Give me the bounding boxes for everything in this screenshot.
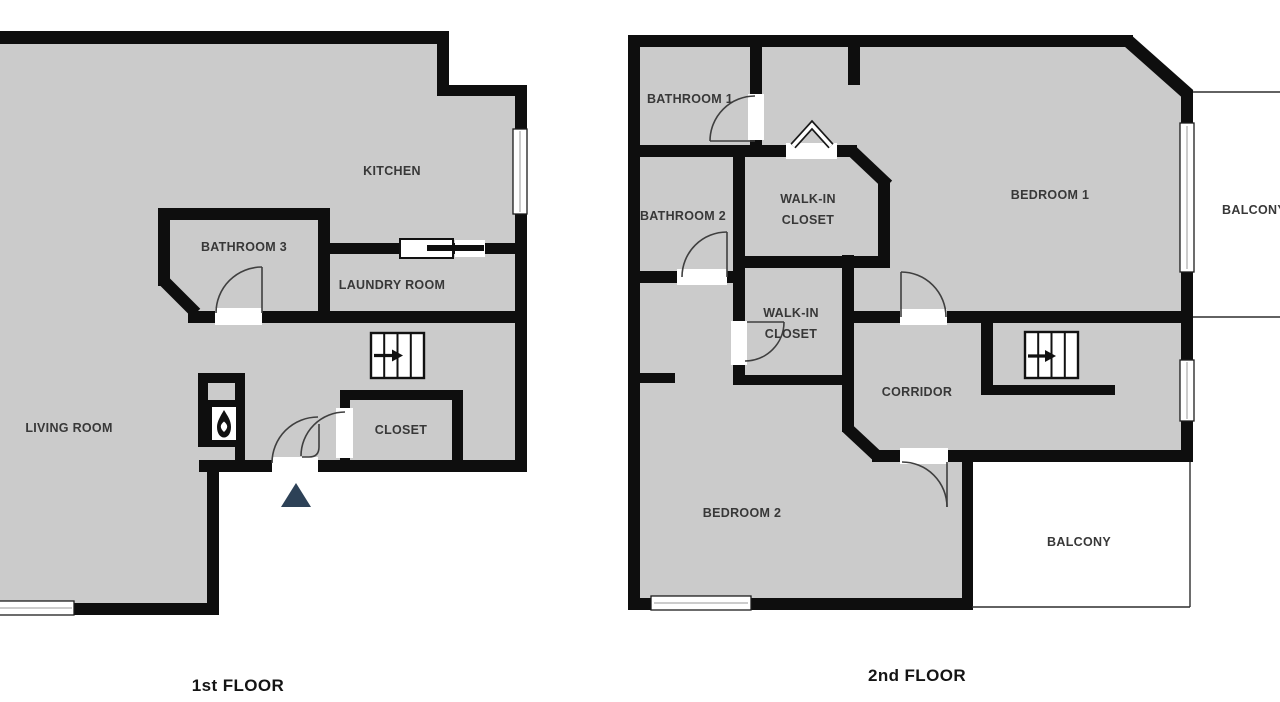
bathroom1-door-opening (748, 94, 764, 140)
front-door-opening (272, 457, 318, 474)
balcony-right-label: BALCONY (1222, 203, 1280, 217)
stairs-icon-first-floor (371, 333, 424, 378)
closet-door-opening (336, 408, 353, 458)
laundry-room-label: LAUNDRY ROOM (339, 278, 445, 292)
bedroom1-window (1180, 123, 1194, 272)
first-floor-title: 1st FLOOR (192, 676, 284, 695)
bathroom3-door-opening (215, 308, 262, 325)
bathroom2-label: BATHROOM 2 (640, 209, 726, 223)
closet-label: CLOSET (375, 423, 428, 437)
bathroom1-label: BATHROOM 1 (647, 92, 733, 106)
entrance-arrow-icon (281, 483, 311, 507)
walkin-closet1-label-line1: WALK-IN (780, 192, 836, 206)
kitchen-appliance-icon (400, 239, 485, 258)
bedroom2-label: BEDROOM 2 (703, 506, 781, 520)
living-room-label: LIVING ROOM (25, 421, 112, 435)
bathroom3-label: BATHROOM 3 (201, 240, 287, 254)
second-floor-title: 2nd FLOOR (868, 666, 966, 685)
walkin-closet2-label-line2: CLOSET (765, 327, 818, 341)
kitchen-window (513, 129, 527, 214)
corridor-window (1180, 360, 1194, 421)
second-floor-plan: BATHROOM 1 BATHROOM 2 WALK-IN CLOSET WAL… (628, 35, 1280, 685)
first-floor-plan: KITCHEN BATHROOM 3 LAUNDRY ROOM LIVING R… (0, 31, 527, 695)
floorplan-svg: KITCHEN BATHROOM 3 LAUNDRY ROOM LIVING R… (0, 0, 1280, 702)
living-room-window (0, 601, 74, 615)
floorplan-canvas: KITCHEN BATHROOM 3 LAUNDRY ROOM LIVING R… (0, 0, 1280, 702)
balcony-bottom-label: BALCONY (1047, 535, 1111, 549)
corridor-label: CORRIDOR (882, 385, 952, 399)
bedroom1-door-opening (900, 309, 947, 325)
bedroom1-label: BEDROOM 1 (1011, 188, 1089, 202)
walkin-closet2-door-opening (731, 321, 747, 365)
walkin-closet1-label-line2: CLOSET (782, 213, 835, 227)
stairs-icon-second-floor (1025, 332, 1078, 378)
bedroom2-window (651, 596, 751, 610)
walkin-closet2-label-line1: WALK-IN (763, 306, 819, 320)
kitchen-label: KITCHEN (363, 164, 421, 178)
bathroom2-door-opening (677, 269, 727, 285)
